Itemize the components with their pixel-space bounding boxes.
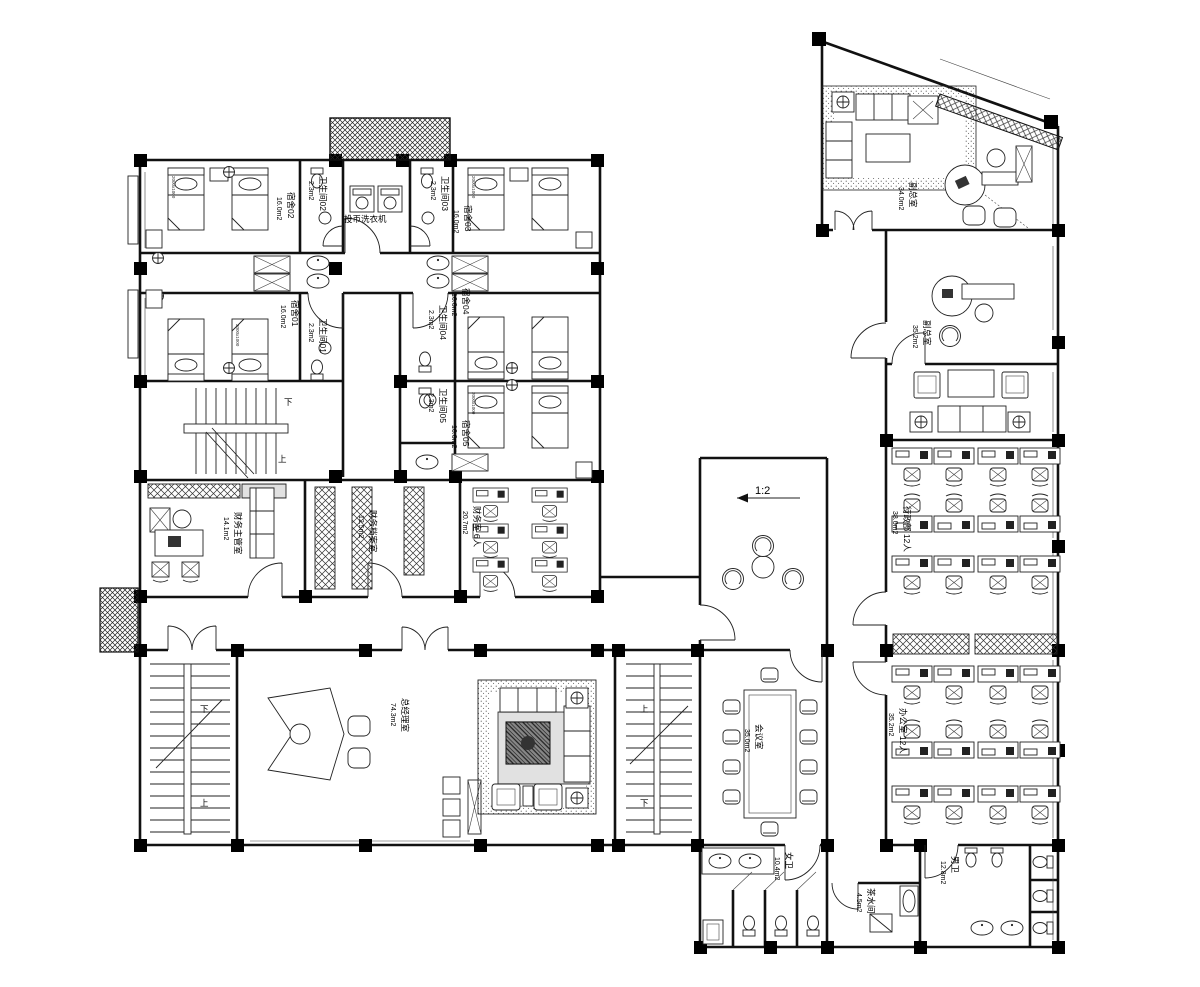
svg-text:2.3m2: 2.3m2 <box>307 323 314 343</box>
svg-text:茶水间: 茶水间 <box>866 888 876 914</box>
label-wc-male: 男卫12.8m2 <box>939 856 960 884</box>
female-wc-fixtures <box>702 848 819 944</box>
label-bed-size-4: 2000x1000 <box>235 324 240 347</box>
svg-text:74.3m2: 74.3m2 <box>389 703 396 726</box>
svg-text:35.2m2: 35.2m2 <box>911 325 918 348</box>
label-dorm03: 宿舍0316.0m2 <box>452 205 473 233</box>
ramp-area <box>723 494 804 590</box>
label-finance-manager: 财务主管室14.1m2 <box>222 512 243 555</box>
svg-text:宿舍03: 宿舍03 <box>463 205 473 232</box>
floor-plan-canvas: 宿舍0216.0m2 卫生间022.3m2 卫生间032.3m2 宿舍0316.… <box>0 0 1200 987</box>
svg-text:行政部 12人: 行政部 12人 <box>902 506 912 552</box>
label-stair-down-1: 下 <box>284 397 293 407</box>
label-stair-up-2: 上 <box>200 798 209 808</box>
svg-text:宿舍02: 宿舍02 <box>286 192 296 219</box>
label-wc01: 卫生间012.3m2 <box>307 318 328 353</box>
vice-gm-top-furniture <box>822 86 1062 228</box>
admin-dept-workstations <box>892 448 1060 654</box>
label-dorm05: 宿舍0516.0m2 <box>450 420 471 448</box>
svg-text:4.5m2: 4.5m2 <box>855 893 862 913</box>
svg-text:卫生间02: 卫生间02 <box>318 176 328 211</box>
svg-text:宿舍01: 宿舍01 <box>290 300 300 327</box>
svg-text:财务主管室: 财务主管室 <box>233 512 243 555</box>
pantry-fixtures <box>870 886 918 932</box>
label-stair-up-1: 上 <box>278 454 287 464</box>
svg-text:14.1m2: 14.1m2 <box>222 517 229 540</box>
label-wc05: 卫生间052.3m2 <box>427 388 448 423</box>
label-laundry: 投币洗衣机 <box>344 214 387 224</box>
label-ramp-slope: 1:2 <box>755 485 770 497</box>
svg-text:16.0m2: 16.0m2 <box>452 210 459 233</box>
office12-workstations <box>892 666 1060 824</box>
svg-text:卫生间05: 卫生间05 <box>438 388 448 423</box>
label-stair-down-2: 下 <box>200 704 209 714</box>
svg-text:卫生间04: 卫生间04 <box>438 305 448 340</box>
svg-text:12.8m2: 12.8m2 <box>939 861 946 884</box>
svg-text:2.3m2: 2.3m2 <box>307 181 314 201</box>
left-stairs <box>150 664 230 834</box>
vice-gm-mid-furniture <box>932 276 1014 347</box>
svg-text:总经理室: 总经理室 <box>400 698 410 733</box>
svg-text:16.0m2: 16.0m2 <box>275 197 282 220</box>
label-finance-office: 财务室 6人20.7m2 <box>461 506 482 548</box>
meeting-room-furniture <box>723 668 817 836</box>
svg-text:35.2m2: 35.2m2 <box>887 713 894 736</box>
label-stair-up-3: 上 <box>640 704 649 714</box>
label-vice-gm-mid: 副总室35.2m2 <box>911 320 932 348</box>
svg-text:副总室: 副总室 <box>908 182 918 208</box>
svg-text:女卫: 女卫 <box>784 852 794 870</box>
svg-text:卫生间01: 卫生间01 <box>318 318 328 353</box>
finance-rooms-furniture <box>100 484 567 652</box>
svg-text:副总室: 副总室 <box>922 320 932 346</box>
right-stairs <box>626 664 692 834</box>
male-wc-fixtures <box>965 848 1053 935</box>
label-wc-female: 女卫10.4m2 <box>773 852 794 880</box>
label-stair-down-3: 下 <box>640 798 649 808</box>
label-dorm01: 宿舍0116.0m2 <box>279 300 300 328</box>
svg-text:2.3m2: 2.3m2 <box>429 181 436 201</box>
svg-text:16.0m2: 16.0m2 <box>450 425 457 448</box>
svg-text:2.3m2: 2.3m2 <box>427 310 434 330</box>
dorm-stairs <box>184 388 288 478</box>
dorm-building-furniture <box>146 118 592 478</box>
svg-text:会议室: 会议室 <box>754 724 764 750</box>
label-bed-size-1: 2000x1000 <box>171 176 176 199</box>
svg-text:10.4m2: 10.4m2 <box>773 857 780 880</box>
svg-text:男卫: 男卫 <box>950 856 960 874</box>
svg-text:34.0m2: 34.0m2 <box>897 187 904 210</box>
label-bed-size-2: 2000x1000 <box>471 176 476 199</box>
svg-text:办公室 12人: 办公室 12人 <box>898 708 908 754</box>
svg-text:16.0m2: 16.0m2 <box>279 305 286 328</box>
svg-text:38.0m2: 38.0m2 <box>891 511 898 534</box>
svg-text:16.0m2: 16.0m2 <box>450 293 457 316</box>
label-gm-office: 总经理室74.3m2 <box>389 698 410 733</box>
svg-text:12.5m2: 12.5m2 <box>357 515 364 538</box>
label-bed-size-3: 2000x1000 <box>471 392 476 415</box>
label-dorm02: 宿舍0216.0m2 <box>275 192 296 220</box>
svg-text:2.3m2: 2.3m2 <box>427 393 434 413</box>
svg-text:35.0m2: 35.0m2 <box>743 729 750 752</box>
svg-text:财务档案室: 财务档案室 <box>368 510 378 553</box>
gm-office-furniture <box>150 664 692 837</box>
svg-text:20.7m2: 20.7m2 <box>461 511 468 534</box>
svg-text:宿舍05: 宿舍05 <box>461 420 471 447</box>
svg-text:卫生间03: 卫生间03 <box>440 176 450 211</box>
svg-text:宿舍04: 宿舍04 <box>461 288 471 315</box>
floor-plan-svg: 宿舍0216.0m2 卫生间022.3m2 卫生间032.3m2 宿舍0316.… <box>0 0 1200 987</box>
svg-text:财务室 6人: 财务室 6人 <box>472 506 482 548</box>
lounge-furniture <box>910 370 1030 432</box>
label-wc03: 卫生间032.3m2 <box>429 176 450 211</box>
label-wc04: 卫生间042.3m2 <box>427 305 448 340</box>
